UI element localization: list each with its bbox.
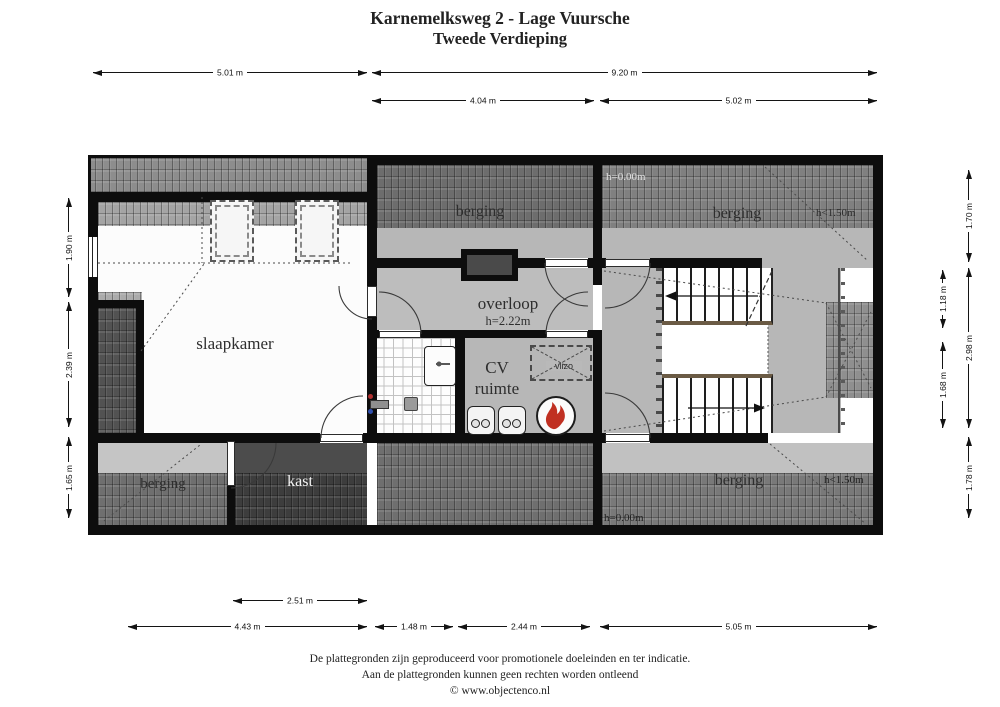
dim-right-inner-1-68-label: 1.68 m: [938, 369, 948, 401]
dim-bottom-4-43-label: 4.43 m: [231, 622, 265, 632]
boiler-1-pipe-left: [471, 419, 480, 428]
page-subtitle: Tweede Verdieping: [0, 29, 1000, 49]
dim-left-1-65: 1.65 m: [68, 437, 69, 518]
berging-bottom-left-label: berging: [103, 476, 223, 493]
berging-bottom-door: [605, 434, 650, 442]
berging-top-right-h150: h<1.50m: [816, 207, 856, 219]
roof-band-top-left: [88, 158, 370, 192]
berging-bottom-left-floor: [98, 443, 227, 473]
outer-wall-left-upper: [88, 196, 98, 237]
dakraam-window-2: [295, 200, 339, 262]
dormer-roof-patch: [826, 302, 873, 398]
berging-bottom-right-floor: [602, 443, 873, 473]
kast-berging-door: [227, 441, 235, 486]
dim-right-1-70-label: 1.70 m: [964, 200, 974, 232]
footer-disclaimer: De plattegronden zijn geproduceerd voor …: [0, 651, 1000, 699]
center-wall-upper: [367, 155, 377, 286]
dim-right-inner-1-18: 1.18 m: [942, 270, 943, 328]
page-title: Karnemelksweg 2 - Lage Vuursche: [0, 8, 1000, 29]
dim-right-2-98: 2.98 m: [968, 268, 969, 428]
title-block: Karnemelksweg 2 - Lage Vuursche Tweede V…: [0, 8, 1000, 49]
kast-floor: [235, 443, 367, 473]
dakraam-window-2-frame: [300, 205, 334, 257]
footer-line1: De plattegronden zijn geproduceerd voor …: [0, 651, 1000, 667]
dim-top-5-01-label: 5.01 m: [213, 68, 247, 78]
dim-bottom-5-05: 5.05 m: [600, 626, 877, 627]
dim-right-1-78-label: 1.78 m: [964, 462, 974, 494]
left-shaft-roof: [98, 308, 136, 433]
dim-right-1-78: 1.78 m: [968, 437, 969, 518]
dim-bottom-2-44: 2.44 m: [458, 626, 590, 627]
dim-bottom-1-48-label: 1.48 m: [397, 622, 431, 632]
dormer-railing-ticks: [841, 268, 845, 433]
floorplan-page: Karnemelksweg 2 - Lage Vuursche Tweede V…: [0, 0, 1000, 707]
stair-railing-left: [656, 268, 662, 433]
berging-bottom-right-h150: h<1.50m: [824, 474, 864, 486]
dormer-railing: [838, 268, 840, 433]
slaapkamer-label: slaapkamer: [150, 334, 320, 354]
boiler-2-pipe-right: [512, 419, 521, 428]
left-shaft-wall-right: [136, 300, 144, 433]
berging-right-door: [605, 259, 650, 267]
kast-berging-divider: [227, 485, 235, 525]
hot-tap-icon: [368, 394, 373, 399]
stair-hall-south-wall: [650, 433, 768, 443]
cv-ruimte-label-line1: CV: [452, 358, 542, 378]
boiler-vessel-2: [498, 406, 526, 435]
berging-top-right-label: berging: [677, 205, 797, 223]
stair-flight-lower: [662, 374, 773, 433]
footer-copyright: © www.objectenco.nl: [0, 683, 1000, 699]
stair-flight-upper: [662, 268, 773, 325]
left-shaft-top: [98, 292, 142, 300]
vlizo-label: vlizo: [546, 361, 582, 371]
slaapkamer-south-wall: [88, 433, 320, 443]
dim-right-2-98-label: 2.98 m: [964, 332, 974, 364]
shower-drain: [404, 397, 418, 411]
slaapkamer-window: [88, 237, 98, 277]
cold-tap-icon: [368, 409, 373, 414]
outer-wall-right: [873, 155, 883, 535]
berging-top-middle-label: berging: [420, 203, 540, 221]
dim-left-1-90: 1.90 m: [68, 198, 69, 297]
chimney-core: [467, 255, 512, 275]
berging-bottom-right-label: berging: [679, 472, 799, 490]
dim-right-inner-1-18-label: 1.18 m: [938, 283, 948, 315]
dim-right-1-70: 1.70 m: [968, 170, 969, 262]
mid-right-wall-lower: [593, 330, 602, 525]
berging-mid-door: [545, 259, 588, 267]
outer-wall-top: [367, 155, 883, 165]
dakraam-window-1-frame: [215, 205, 249, 257]
outer-wall-left-lower: [88, 277, 98, 535]
boiler-vessel-1: [467, 406, 495, 435]
stair-hall-north-wall: [650, 258, 762, 268]
kast-slaapkamer-door: [320, 434, 363, 442]
boiler-1-pipe-right: [481, 419, 490, 428]
badkamer-door: [379, 331, 421, 338]
footer-line2: Aan de plattegronden kunnen geen rechten…: [0, 667, 1000, 683]
berging-top-right-floor: [602, 228, 873, 258]
outer-wall-top-left-thin: [88, 155, 370, 158]
dim-bottom-2-44-label: 2.44 m: [507, 622, 541, 632]
kast-label: kast: [240, 473, 360, 491]
dim-right-inner-1-68: 1.68 m: [942, 342, 943, 428]
overloop-label: overloop: [430, 294, 586, 314]
dim-bottom-2-51: 2.51 m: [233, 600, 367, 601]
dim-top-9-20: 9.20 m: [372, 72, 877, 73]
dim-top-5-02: 5.02 m: [600, 100, 877, 101]
dim-top-9-20-label: 9.20 m: [608, 68, 642, 78]
dim-top-4-04-label: 4.04 m: [466, 96, 500, 106]
cv-ketel: [536, 396, 576, 436]
mid-right-wall-upper: [593, 155, 602, 285]
dim-top-5-02-label: 5.02 m: [722, 96, 756, 106]
berging-top-right-h000: h=0.00m: [606, 171, 646, 183]
dim-left-2-39-label: 2.39 m: [64, 349, 74, 381]
overloop-height-label: h=2.22m: [430, 314, 586, 329]
dim-bottom-5-05-label: 5.05 m: [722, 622, 756, 632]
slaapkamer-door: [367, 286, 377, 317]
berging-bottom-right-h000: h=0.00m: [604, 512, 644, 524]
overloop-south-wall: [421, 330, 546, 338]
dim-bottom-1-48: 1.48 m: [375, 626, 453, 627]
shower-mixer: [370, 400, 389, 409]
dim-bottom-4-43: 4.43 m: [128, 626, 367, 627]
dim-bottom-2-51-label: 2.51 m: [283, 596, 317, 606]
cv-ruimte-door: [546, 331, 588, 338]
dim-top-5-01: 5.01 m: [93, 72, 367, 73]
boiler-2-pipe-left: [502, 419, 511, 428]
cv-ruimte-label-line2: ruimte: [452, 379, 542, 399]
dim-left-1-90-label: 1.90 m: [64, 232, 74, 264]
outer-wall-left-thin: [88, 155, 91, 196]
dakraam-window-1: [210, 200, 254, 262]
stair-void: [662, 325, 768, 374]
dim-left-1-65-label: 1.65 m: [64, 462, 74, 494]
outer-wall-bottom: [88, 525, 883, 535]
berging-bottom-middle-roof: [377, 443, 593, 525]
dim-left-2-39: 2.39 m: [68, 302, 69, 427]
dim-top-4-04: 4.04 m: [372, 100, 594, 101]
